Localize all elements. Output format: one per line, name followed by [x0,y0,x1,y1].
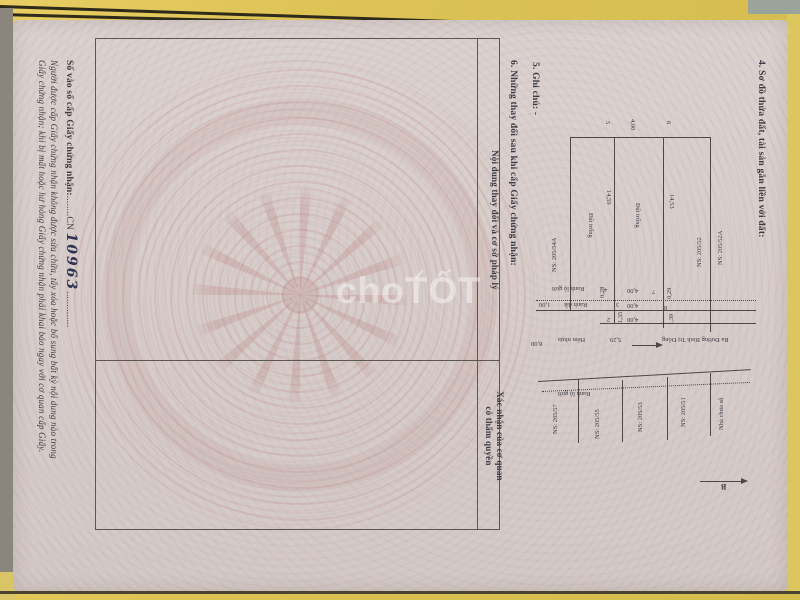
diagram-label: 1 [662,320,665,327]
chotot-watermark: choTỐT ✓ [336,270,482,312]
issue-number-prefix: CN [64,216,74,230]
section5-title: 5. Ghi chú: - [530,62,540,115]
diagram-line [536,310,756,311]
diagram-label: 4,00 [629,119,636,130]
diagram-label: 8,00 [531,340,542,347]
diagram-label: NS: 205/54A [551,238,558,273]
issue-dots-after: .............. [64,291,74,327]
issue-dots-before: ........ [64,196,74,217]
changes-table-column-divider [95,360,500,361]
background-patch-top-right [748,0,800,14]
diagram-label: 2 [607,316,610,323]
diagram-label: 5,29 [610,336,621,343]
warning-text-line2: Giấy chứng nhận; khi bị mất hoặc hư hỏng… [37,60,47,452]
diagram-line [614,137,615,324]
diagram-label: Đất trống [587,213,594,238]
page-bottom-edge [0,591,800,594]
diagram-label: 3 [616,301,619,308]
diagram-label: 8 [664,304,667,311]
diagram-label: 4,00 [627,302,638,309]
diagram-label: 4,00 [627,316,638,323]
diagram-label: 4,00 [627,287,638,294]
diagram-label: NS: 205/52A [717,231,724,266]
diagram-line [578,379,579,443]
diagram-line [600,323,756,324]
diagram-label: 14,53 [668,194,675,209]
diagram-label: Ranh lộ giới [558,390,590,397]
photo-of-land-certificate: 4. Sơ đồ thửa đất, tài sản gắn liền với … [0,0,800,600]
diagram-label: Nhà chưa số [718,398,725,430]
diagram-label: Đất trống [634,203,641,228]
issue-number-handwritten: 10963 [63,233,79,292]
diagram-label: Hẻm nhựa [558,336,585,343]
diagram-label: Ra Đường Bình Trị Đông [662,336,729,343]
diagram-label: NS: 205/55 [594,409,601,439]
diagram-label: Ranh lộ giới [552,285,584,292]
section4-title: 4. Sơ đồ thửa đất, tài sản gắn liền với … [756,60,766,238]
diagram-label: 5 [604,121,611,124]
diagram-line [570,137,710,138]
diagram-line [667,377,668,440]
chotot-watermark-text: choTỐT [336,270,482,311]
diagram-label: NS: 205/53 [637,402,644,432]
diagram-line [622,380,623,442]
section6-title: 6. Những thay đổi sau khi cấp Giấy chứng… [508,60,518,266]
diagram-label: 4 [604,286,607,293]
diagram-line [632,345,657,346]
warning-text-line1: Người được cấp Giấy chứng nhận không đượ… [49,60,59,459]
diagram-label: 14,59 [605,190,612,205]
diagram-label: Ranh đất [564,301,587,308]
diagram-label: 1,39 [668,314,675,325]
issue-number-label: Số vào sổ cấp Giấy chứng nhận: [64,60,74,196]
table-header-content-column: Nội dung thay đổi và cơ sở pháp lý [490,140,500,300]
table-header-confirm-line2: có thẩm quyền [484,406,494,465]
diagram-label: B [721,482,726,491]
road-arrowhead-icon [656,342,663,348]
diagram-line [710,373,711,436]
issue-number-row: Số vào sổ cấp Giấy chứng nhận:........CN… [63,60,79,327]
table-header-confirm-line1: Xác nhận của cơ quan [495,391,505,481]
table-header-confirm-column: Xác nhận của cơ quan có thẩm quyền [483,381,505,491]
diagram-label: NS: 205/57 [552,404,559,434]
diagram-label: 1,00 [539,301,550,308]
diagram-label: NS: 205/52 [696,237,703,267]
check-icon: ✓ [413,266,427,284]
diagram-label: NS: 205/51 [680,397,687,427]
diagram-line [710,137,711,332]
diagram-label: 1,35 [617,312,624,323]
photo-left-edge [0,8,13,600]
diagram-label: 6 [665,121,672,124]
folder-right-sliver [787,10,800,594]
diagram-label: 7 [652,288,655,295]
north-arrowhead-icon [741,478,748,484]
diagram-label: 0,29 [666,288,673,299]
